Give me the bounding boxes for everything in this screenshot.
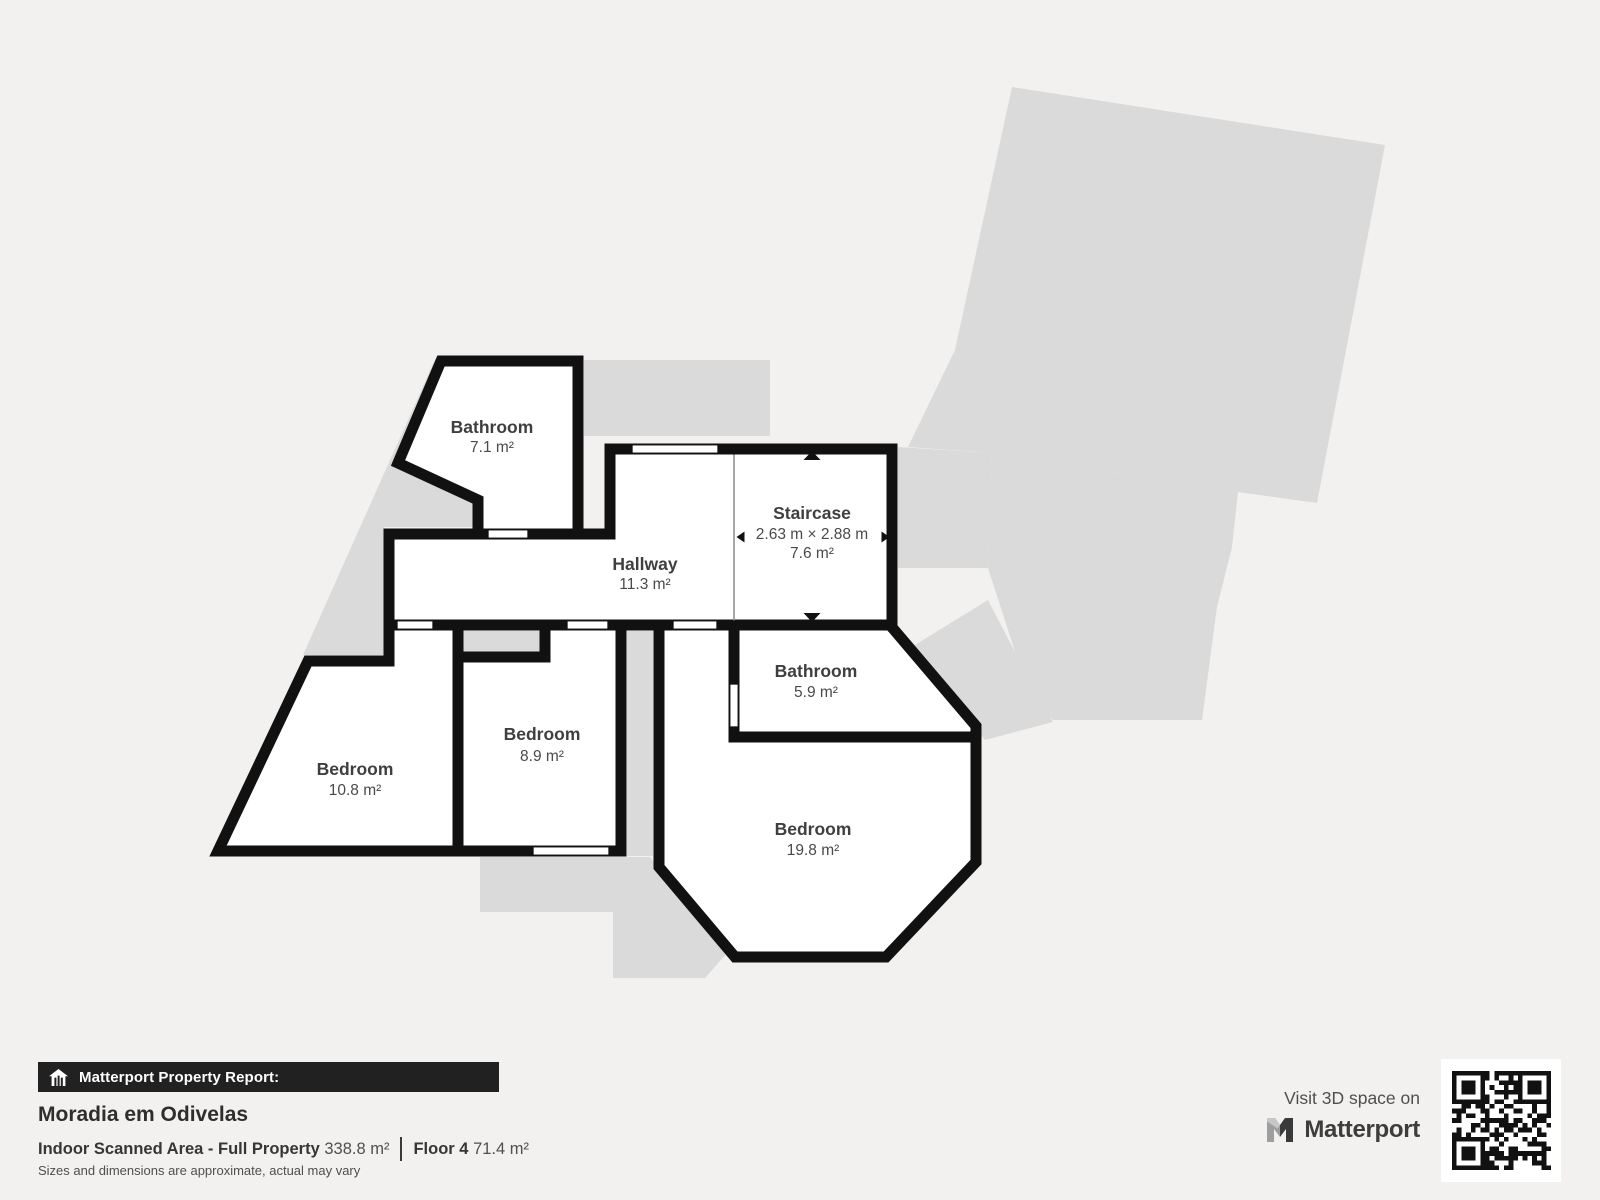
matterport-wordmark: Matterport [1304, 1116, 1420, 1144]
room-label-hallway: Hallway [612, 554, 677, 574]
room-area-bedroom-10: 10.8 m² [329, 782, 382, 799]
room-bedroom-10-outline [218, 625, 458, 851]
room-label-bathroom-7: Bathroom [451, 417, 534, 437]
floor-plan: Bathroom 7.1 m² Hallway 11.3 m² Staircas… [0, 0, 1600, 1200]
matterport-floorplan-report: { "floorplan": { "rooms": [ {"name": "Ba… [0, 0, 1600, 1200]
scanned-area-label: Indoor Scanned Area - Full Property [38, 1140, 320, 1159]
area-info-row: Indoor Scanned Area - Full Property 338.… [38, 1136, 529, 1162]
visit-3d-promo: Visit 3D space on Matterport [1265, 1088, 1420, 1145]
window-hallway-top [632, 445, 718, 453]
house-icon [49, 1069, 68, 1086]
floor-area-value: 71.4 m² [468, 1140, 529, 1159]
room-area-hallway: 11.3 m² [619, 576, 670, 593]
floor-label: Floor 4 [413, 1140, 468, 1159]
room-label-bedroom-19: Bedroom [775, 819, 852, 839]
qr-pattern [1452, 1071, 1551, 1170]
matterport-m-logo [1265, 1115, 1295, 1145]
room-area-bathroom-5: 5.9 m² [794, 684, 838, 701]
room-area-staircase: 7.6 m² [790, 545, 834, 562]
room-area-bathroom-7: 7.1 m² [470, 439, 514, 456]
scanned-area-value: 338.8 m² [320, 1140, 390, 1159]
visit-3d-text: Visit 3D space on [1265, 1088, 1420, 1109]
door-bathroom-7 [488, 530, 528, 538]
disclaimer-text: Sizes and dimensions are approximate, ac… [38, 1163, 360, 1178]
room-label-bedroom-10: Bedroom [317, 759, 394, 779]
report-bar: Matterport Property Report: [38, 1062, 499, 1092]
room-label-bathroom-5: Bathroom [775, 661, 858, 681]
room-label-bedroom-8: Bedroom [504, 724, 581, 744]
report-bar-label: Matterport Property Report: [79, 1069, 279, 1086]
room-area-bedroom-19: 19.8 m² [787, 842, 840, 859]
property-title: Moradia em Odivelas [38, 1103, 248, 1127]
room-label-staircase: Staircase [773, 503, 851, 523]
room-dims-staircase: 2.63 m × 2.88 m [756, 526, 868, 543]
door-bedroom-19 [673, 621, 717, 629]
door-bathroom-5 [730, 684, 738, 727]
door-bedroom-8 [567, 621, 608, 629]
info-divider [400, 1137, 402, 1161]
window-bedroom-8-bottom [533, 847, 609, 855]
room-area-bedroom-8: 8.9 m² [520, 748, 564, 765]
matterport-brand-row: Matterport [1265, 1115, 1420, 1145]
qr-code [1441, 1059, 1561, 1182]
window-hallway-left [397, 621, 433, 629]
